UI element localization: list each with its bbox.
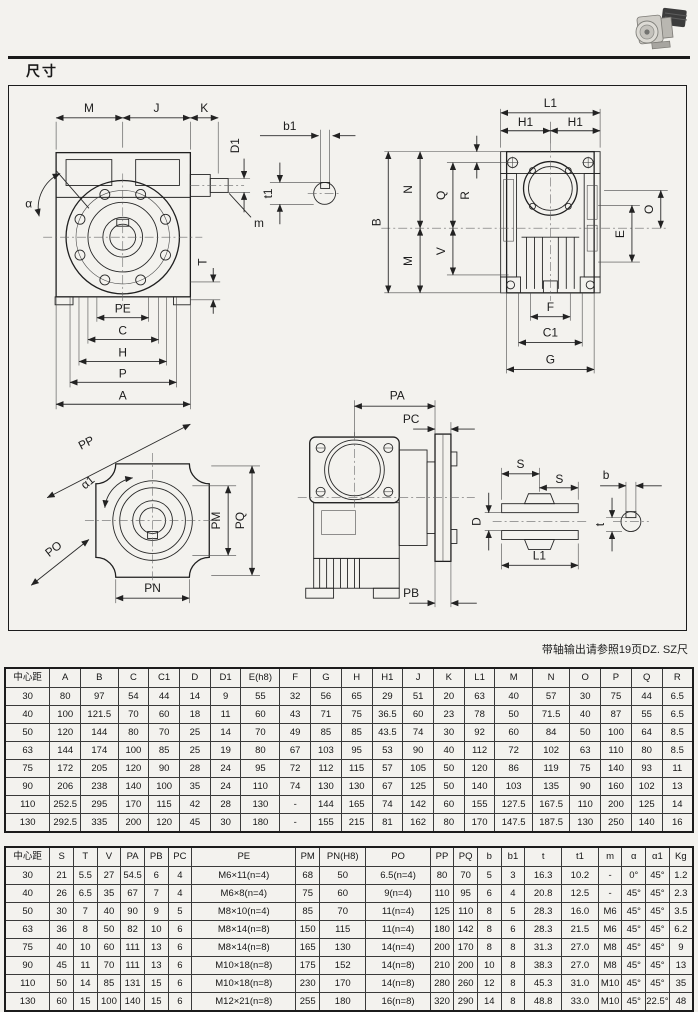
table-cell: 13 xyxy=(144,939,168,957)
table-cell: 4 xyxy=(168,885,192,903)
table-cell: 140 xyxy=(121,993,145,1012)
table-cell: 6.5 xyxy=(73,885,97,903)
table-cell: 19 xyxy=(210,742,241,760)
table-cell: 8 xyxy=(477,903,501,921)
table-cell: 63 xyxy=(570,742,601,760)
table-cell: 75 xyxy=(5,939,50,957)
column-header: PA xyxy=(121,847,145,867)
table-cell: 15 xyxy=(144,993,168,1012)
table-cell: 102 xyxy=(631,778,662,796)
page-title: 尺寸 xyxy=(26,61,58,81)
table-cell: M8 xyxy=(598,957,622,975)
table-cell: 44 xyxy=(631,688,662,706)
table-cell: 7 xyxy=(144,885,168,903)
table-row: 1306015100140156M12×21(n=8)25518016(n=8)… xyxy=(5,993,693,1012)
dim-label-R: R xyxy=(458,191,472,200)
column-header: H1 xyxy=(372,668,403,688)
table-cell: 144 xyxy=(81,724,118,742)
table-row: 110501485131156M10×18(n=8)23017014(n=8)2… xyxy=(5,975,693,993)
table-cell: 30 xyxy=(5,688,50,706)
column-header: C1 xyxy=(149,668,180,688)
table-cell: 40 xyxy=(495,688,532,706)
table-cell: 72 xyxy=(280,760,311,778)
table-cell: 3 xyxy=(501,867,525,885)
table-cell: 68 xyxy=(296,867,320,885)
column-header: H xyxy=(341,668,372,688)
dimension-table-2: 中心距STVPAPBPCPEPMPN(H8)POPPPQbb1tt1mαα1Kg… xyxy=(4,846,694,1012)
table-cell: 28 xyxy=(210,796,241,814)
table-cell: 60 xyxy=(149,706,180,724)
table-cell: 130 xyxy=(5,993,50,1012)
table-cell: 290 xyxy=(454,993,478,1012)
table-cell: 35 xyxy=(669,975,693,993)
table-cell: 50 xyxy=(495,706,532,724)
table-cell: 56 xyxy=(311,688,342,706)
table-cell: 65 xyxy=(341,688,372,706)
table-cell: 6 xyxy=(168,975,192,993)
table-cell: 100 xyxy=(50,706,81,724)
table-cell: 200 xyxy=(601,796,632,814)
table-cell: 74 xyxy=(280,778,311,796)
table-cell: 120 xyxy=(149,814,180,833)
table-row: 9020623814010035241107413013067125501401… xyxy=(5,778,693,796)
table-cell: 7 xyxy=(73,903,97,921)
dim-label-C1: C1 xyxy=(543,326,559,340)
table-cell: 180 xyxy=(430,921,454,939)
table-cell: 43.5 xyxy=(372,724,403,742)
column-header: PC xyxy=(168,847,192,867)
table-cell: 60 xyxy=(403,706,434,724)
front-view-drawing: M J K D1 m α T xyxy=(25,101,264,409)
table-cell: 14 xyxy=(662,796,693,814)
table-cell: 75 xyxy=(341,706,372,724)
table-cell: 33.0 xyxy=(562,993,599,1012)
table-cell: 67 xyxy=(280,742,311,760)
table-cell: 140 xyxy=(601,760,632,778)
dim-label-S: S xyxy=(517,457,525,471)
table-row: 75401060111136M8×14(n=8)16513014(n=4)200… xyxy=(5,939,693,957)
table-cell: 54.5 xyxy=(121,867,145,885)
column-header: PB xyxy=(144,847,168,867)
table-cell: 100 xyxy=(118,742,149,760)
table-cell: M10 xyxy=(598,975,622,993)
table-cell: 40 xyxy=(97,903,121,921)
dim-label-P: P xyxy=(119,366,127,380)
flange-view-drawing: PP α1 PO PM PQ PN xyxy=(31,424,260,603)
table-cell: 6 xyxy=(168,993,192,1012)
dim-label-PQ: PQ xyxy=(233,512,247,529)
table-cell: 71 xyxy=(311,706,342,724)
table-cell: 70 xyxy=(97,957,121,975)
column-header: G xyxy=(311,668,342,688)
table-cell: 45 xyxy=(50,957,74,975)
table-cell: 48.8 xyxy=(525,993,562,1012)
column-header: Q xyxy=(631,668,662,688)
table-cell: 21 xyxy=(50,867,74,885)
table-cell: 45° xyxy=(622,885,646,903)
header-row: 中心距ABCC1DD1E(h8)FGHH1JKL1MNOPQR xyxy=(5,668,693,688)
column-header: D1 xyxy=(210,668,241,688)
table-cell: 6.2 xyxy=(669,921,693,939)
table-cell: 8 xyxy=(501,939,525,957)
table-cell: 71.5 xyxy=(532,706,569,724)
column-header: B xyxy=(81,668,118,688)
column-header: D xyxy=(180,668,211,688)
table-cell: 5.5 xyxy=(73,867,97,885)
table-cell: - xyxy=(280,796,311,814)
table-cell: 119 xyxy=(532,760,569,778)
table-cell: 81 xyxy=(372,814,403,833)
dim-label-M: M xyxy=(401,256,415,266)
table-cell: M12×21(n=8) xyxy=(192,993,296,1012)
column-header: E(h8) xyxy=(241,668,280,688)
table-cell: 64 xyxy=(631,724,662,742)
table-cell: 40 xyxy=(5,885,50,903)
table-cell: 42 xyxy=(180,796,211,814)
dim-label-PO: PO xyxy=(42,538,64,560)
table-cell: 110 xyxy=(430,885,454,903)
table-cell: 167.5 xyxy=(532,796,569,814)
table-cell: 85 xyxy=(149,742,180,760)
table-cell: 60 xyxy=(433,796,464,814)
column-header: Kg xyxy=(669,847,693,867)
column-header: V xyxy=(97,847,121,867)
table-cell: 95 xyxy=(241,760,280,778)
dim-label-t1: t1 xyxy=(261,188,275,198)
table-cell: 53 xyxy=(372,742,403,760)
table-cell: 125 xyxy=(631,796,662,814)
dim-label-G: G xyxy=(546,352,555,366)
table-cell: 40 xyxy=(50,939,74,957)
table-cell: 4 xyxy=(168,867,192,885)
table-cell: 24 xyxy=(210,760,241,778)
table-cell: 54 xyxy=(118,688,149,706)
table-cell: 11 xyxy=(662,760,693,778)
drawing-panel: M J K D1 m α T xyxy=(8,85,687,631)
table-cell: 6 xyxy=(501,921,525,939)
table-row: 30215.52754.564M6×11(n=4)68506.5(n=4)807… xyxy=(5,867,693,885)
column-header: t1 xyxy=(562,847,599,867)
table-row: 6314417410085251980671039553904011272102… xyxy=(5,742,693,760)
table-cell: 12 xyxy=(477,975,501,993)
dim-label-K: K xyxy=(200,101,208,115)
table-cell: 110 xyxy=(241,778,280,796)
table-cell: 55 xyxy=(631,706,662,724)
table-cell: 111 xyxy=(121,939,145,957)
table-cell: 92 xyxy=(464,724,495,742)
table-cell: 8.5 xyxy=(662,742,693,760)
table-cell: 49 xyxy=(280,724,311,742)
dim-label-H1: H1 xyxy=(568,115,584,129)
table-cell: 20.8 xyxy=(525,885,562,903)
table-cell: 130 xyxy=(570,814,601,833)
table-cell: 50 xyxy=(433,778,464,796)
table-cell: 63 xyxy=(464,688,495,706)
table-cell: 20 xyxy=(433,688,464,706)
table-cell: 112 xyxy=(464,742,495,760)
table-cell: 155 xyxy=(464,796,495,814)
table-cell: 93 xyxy=(631,760,662,778)
keyway-detail-b1-t1: b1 t1 xyxy=(260,119,355,224)
dim-label-b: b xyxy=(603,468,610,482)
table-cell: 50 xyxy=(320,867,366,885)
table-cell: 85 xyxy=(311,724,342,742)
table-cell: 45 xyxy=(180,814,211,833)
table-cell: 11(n=4) xyxy=(366,921,430,939)
table-cell: 170 xyxy=(320,975,366,993)
table-cell: 80 xyxy=(118,724,149,742)
table-cell: 206 xyxy=(50,778,81,796)
table-cell: 55 xyxy=(241,688,280,706)
table-cell: 238 xyxy=(81,778,118,796)
table-cell: 85 xyxy=(341,724,372,742)
table-cell: 140 xyxy=(464,778,495,796)
table-cell: 30 xyxy=(50,903,74,921)
hollow-shaft-detail: S S D L1 b t xyxy=(470,457,662,569)
table-row: 3080975444149553256652951206340573075446… xyxy=(5,688,693,706)
table-cell: 27 xyxy=(97,867,121,885)
table-cell: 25 xyxy=(180,724,211,742)
table-cell: 95 xyxy=(454,885,478,903)
table-cell: 10.2 xyxy=(562,867,599,885)
table-cell: 45° xyxy=(646,975,670,993)
table-cell: 27.0 xyxy=(562,939,599,957)
table-cell: 9(n=4) xyxy=(366,885,430,903)
column-header: α1 xyxy=(646,847,670,867)
table-cell: 8 xyxy=(477,939,501,957)
table-cell: 144 xyxy=(311,796,342,814)
table-cell: 150 xyxy=(296,921,320,939)
table-cell: 45° xyxy=(622,993,646,1012)
dim-label-F: F xyxy=(547,300,554,314)
table-cell: 174 xyxy=(81,742,118,760)
column-header: R xyxy=(662,668,693,688)
table-cell: 165 xyxy=(296,939,320,957)
table-cell: 14 xyxy=(210,724,241,742)
table-cell: 31.0 xyxy=(562,975,599,993)
table-cell: 24 xyxy=(210,778,241,796)
table-cell: 6.5 xyxy=(662,688,693,706)
table-cell: 3.5 xyxy=(669,903,693,921)
table-cell: 21.5 xyxy=(562,921,599,939)
table-cell: 140 xyxy=(631,814,662,833)
dim-label-N: N xyxy=(401,185,415,194)
table-cell: 147.5 xyxy=(495,814,532,833)
dimension-table-2-wrapper: 中心距STVPAPBPCPEPMPN(H8)POPPPQbb1tt1mαα1Kg… xyxy=(4,846,694,1012)
table-cell: 16.3 xyxy=(525,867,562,885)
table-cell: 10 xyxy=(477,957,501,975)
table-cell: M6×8(n=4) xyxy=(192,885,296,903)
column-header: 中心距 xyxy=(5,847,50,867)
table-cell: 30 xyxy=(433,724,464,742)
table-cell: 40 xyxy=(570,706,601,724)
table-row: 40100121.5706018116043717536.56023785071… xyxy=(5,706,693,724)
table-row: 50120144807025147049858543.5743092608450… xyxy=(5,724,693,742)
dim-label-PE: PE xyxy=(115,302,131,316)
table-cell: 1.2 xyxy=(669,867,693,885)
dim-label-PB: PB xyxy=(403,586,419,600)
dim-label-alpha1: α1 xyxy=(78,472,98,492)
table-cell: 120 xyxy=(50,724,81,742)
table-cell: 142 xyxy=(454,921,478,939)
table-cell: 40 xyxy=(433,742,464,760)
table-cell: 28.3 xyxy=(525,921,562,939)
table-cell: 45° xyxy=(646,921,670,939)
table-cell: 8 xyxy=(501,993,525,1012)
table-cell: 45° xyxy=(622,939,646,957)
table-cell: - xyxy=(280,814,311,833)
column-header: F xyxy=(280,668,311,688)
table-cell: 45° xyxy=(622,975,646,993)
table-cell: 22.5° xyxy=(646,993,670,1012)
table-cell: 23 xyxy=(433,706,464,724)
table-cell: 74 xyxy=(403,724,434,742)
table-cell: 43 xyxy=(280,706,311,724)
table-cell: 13 xyxy=(669,957,693,975)
column-header: C xyxy=(118,668,149,688)
table-cell: 87 xyxy=(601,706,632,724)
table-cell: M10×18(n=8) xyxy=(192,957,296,975)
column-header: PQ xyxy=(454,847,478,867)
product-photo xyxy=(632,4,692,54)
table-cell: 205 xyxy=(81,760,118,778)
table-cell: 4 xyxy=(501,885,525,903)
table-cell: 57 xyxy=(532,688,569,706)
dim-label-PP: PP xyxy=(76,433,97,453)
table-cell: 80 xyxy=(433,814,464,833)
table-cell: 45° xyxy=(646,957,670,975)
header-divider xyxy=(8,56,690,59)
table-cell: 120 xyxy=(118,760,149,778)
table-cell: 11 xyxy=(210,706,241,724)
dim-label-t: t xyxy=(593,522,607,526)
table-row: 633685082106M8×14(n=8)15011511(n=4)18014… xyxy=(5,921,693,939)
column-header: L1 xyxy=(464,668,495,688)
table-cell: 78 xyxy=(464,706,495,724)
table-cell: 63 xyxy=(5,742,50,760)
table-cell: 90 xyxy=(5,778,50,796)
table-cell: 95 xyxy=(341,742,372,760)
table-cell: M10 xyxy=(598,993,622,1012)
table-cell: 144 xyxy=(50,742,81,760)
table-cell: 11 xyxy=(73,957,97,975)
table-cell: 110 xyxy=(570,796,601,814)
column-header: P xyxy=(601,668,632,688)
column-header: PE xyxy=(192,847,296,867)
table-cell: 5 xyxy=(477,867,501,885)
table-cell: 252.5 xyxy=(50,796,81,814)
table-cell: M6 xyxy=(598,921,622,939)
side-view-drawing: L1 H1 H1 B N M Q V R E O F C1 G xyxy=(369,96,667,374)
table-cell: 103 xyxy=(495,778,532,796)
table-cell: 50 xyxy=(97,921,121,939)
table-cell: 160 xyxy=(601,778,632,796)
table-cell: 84 xyxy=(532,724,569,742)
table-cell: 110 xyxy=(601,742,632,760)
table-cell: 90 xyxy=(403,742,434,760)
column-header: PO xyxy=(366,847,430,867)
table-cell: 36 xyxy=(50,921,74,939)
table-cell: 30 xyxy=(210,814,241,833)
table-cell: 172 xyxy=(50,760,81,778)
table-cell: 50 xyxy=(50,975,74,993)
column-header: b xyxy=(477,847,501,867)
table-cell: 100 xyxy=(149,778,180,796)
table-cell: 170 xyxy=(454,939,478,957)
table-cell: 125 xyxy=(403,778,434,796)
side-view-2-drawing: PA PC PB xyxy=(298,388,477,607)
dim-label-D: D xyxy=(470,517,484,526)
table-cell: 130 xyxy=(341,778,372,796)
table-cell: 45.3 xyxy=(525,975,562,993)
table-cell: 60 xyxy=(50,993,74,1012)
table-cell: 60 xyxy=(495,724,532,742)
table-cell: 6 xyxy=(168,921,192,939)
table-cell: 75 xyxy=(5,760,50,778)
table-cell: 25 xyxy=(180,742,211,760)
table-cell: 13 xyxy=(662,778,693,796)
dim-label-PN: PN xyxy=(144,581,161,595)
table-cell: 80 xyxy=(631,742,662,760)
column-header: A xyxy=(50,668,81,688)
table-cell: 29 xyxy=(372,688,403,706)
table-cell: 115 xyxy=(341,760,372,778)
table-cell: 45° xyxy=(646,939,670,957)
table-cell: 35 xyxy=(97,885,121,903)
table-cell: 31.3 xyxy=(525,939,562,957)
dim-label-PC: PC xyxy=(403,412,420,426)
table-cell: - xyxy=(598,885,622,903)
column-header: PM xyxy=(296,847,320,867)
table-cell: 8 xyxy=(501,957,525,975)
table-cell: 8.5 xyxy=(662,724,693,742)
table-cell: 85 xyxy=(296,903,320,921)
table-cell: 12.5 xyxy=(562,885,599,903)
header-row: 中心距STVPAPBPCPEPMPN(H8)POPPPQbb1tt1mαα1Kg xyxy=(5,847,693,867)
table-cell: 60 xyxy=(97,939,121,957)
table-cell: 70 xyxy=(454,867,478,885)
dim-label-PM: PM xyxy=(209,512,223,530)
table-cell: 2.3 xyxy=(669,885,693,903)
dim-label-A: A xyxy=(119,388,127,402)
table-cell: 295 xyxy=(81,796,118,814)
table-cell: 6 xyxy=(168,957,192,975)
table-cell: 15 xyxy=(144,975,168,993)
table-cell: M8 xyxy=(598,939,622,957)
table-cell: 28.3 xyxy=(525,903,562,921)
dimension-table-1-wrapper: 中心距ABCC1DD1E(h8)FGHH1JKL1MNOPQR308097544… xyxy=(4,667,694,833)
table-cell: 80 xyxy=(241,742,280,760)
dim-label-m: m xyxy=(254,216,264,230)
table-cell: 90 xyxy=(5,957,50,975)
table-cell: 50 xyxy=(5,903,50,921)
table-cell: 50 xyxy=(5,724,50,742)
dim-label-O: O xyxy=(642,205,656,214)
column-header: N xyxy=(532,668,569,688)
table-cell: 11(n=4) xyxy=(366,903,430,921)
table-cell: 5 xyxy=(501,903,525,921)
table-cell: 280 xyxy=(430,975,454,993)
dim-label-C: C xyxy=(118,324,127,338)
table-cell: 13 xyxy=(144,957,168,975)
table-cell: 48 xyxy=(669,993,693,1012)
table-cell: 51 xyxy=(403,688,434,706)
table-cell: 50 xyxy=(433,760,464,778)
table-cell: 32 xyxy=(280,688,311,706)
table-cell: 130 xyxy=(241,796,280,814)
dim-label-L1: L1 xyxy=(533,548,547,562)
dim-label-Q: Q xyxy=(434,191,448,200)
